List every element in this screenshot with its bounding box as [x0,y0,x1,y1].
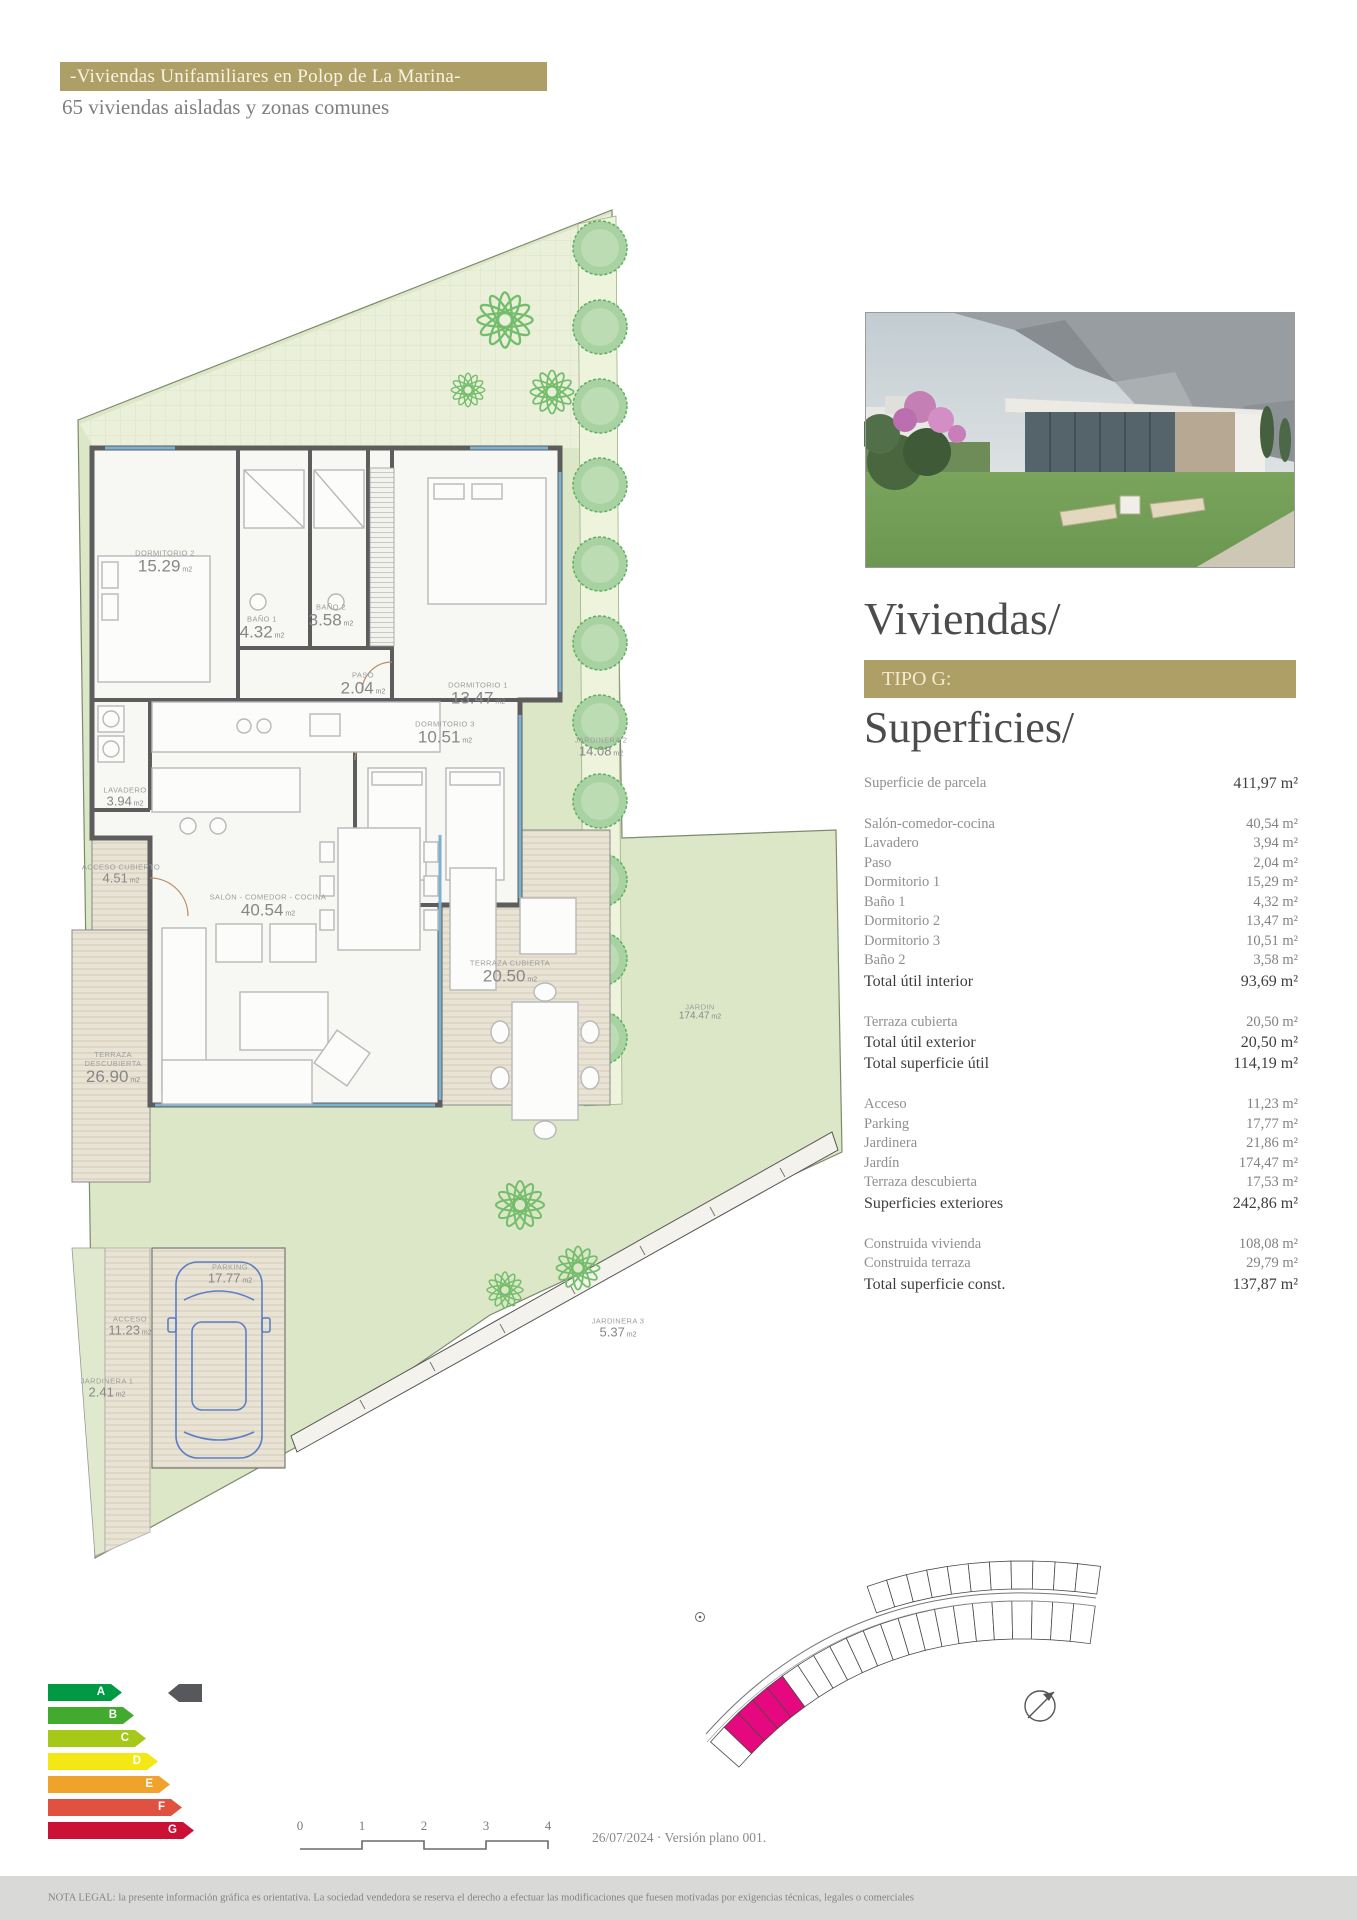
superficies-row: Total superficie útil114,19 m² [864,1053,1298,1074]
superficies-row: Dormitorio 115,29 m² [864,873,1298,893]
row-value: 17,53 m² [1246,1173,1298,1193]
row-label: Jardinera [864,1134,917,1154]
scale-tick-2: 2 [421,1818,428,1834]
energy-rating-B: B [48,1707,134,1724]
row-value: 3,94 m² [1253,834,1298,854]
type-label: TIPO G: [882,668,951,690]
row-value: 10,51 m² [1246,932,1298,952]
row-value: 114,19 m² [1233,1053,1298,1074]
superficies-row: Salón-comedor-cocina40,54 m² [864,815,1298,835]
superficies-row: Jardín174,47 m² [864,1154,1298,1174]
page-title: -Viviendas Unifamiliares en Polop de La … [70,66,461,87]
row-label: Acceso [864,1095,907,1115]
superficies-row: Baño 23,58 m² [864,951,1298,971]
legal-footer: NOTA LEGAL: la presente información gráf… [0,1876,1357,1920]
row-label: Total útil interior [864,971,973,992]
row-label: Superficies exteriores [864,1193,1003,1214]
row-label: Superficie de parcela [864,774,986,794]
energy-rating-A: A [48,1684,122,1701]
row-label: Dormitorio 1 [864,873,940,893]
superficies-row: Paso2,04 m² [864,854,1298,874]
compass-icon [1025,1691,1055,1721]
row-label: Terraza cubierta [864,1013,958,1033]
row-value: 93,69 m² [1241,971,1298,992]
row-label: Terraza descubierta [864,1173,977,1193]
row-value: 20,50 m² [1246,1013,1298,1033]
parking-area [152,1248,285,1468]
superficies-row: Superficies exteriores242,86 m² [864,1193,1298,1214]
superficies-row: Construida vivienda108,08 m² [864,1235,1298,1255]
legal-text: NOTA LEGAL: la presente información gráf… [48,1893,914,1904]
scale-bar [300,1841,548,1849]
energy-rating-C: C [48,1730,146,1747]
site-plot [947,1564,971,1594]
row-value: 242,86 m² [1233,1193,1298,1214]
row-label: Total superficie const. [864,1274,1006,1295]
page-subtitle: 65 viviendas aisladas y zonas comunes [62,95,389,120]
brochure-page: -Viviendas Unifamiliares en Polop de La … [0,0,1357,1920]
superficies-row: Acceso11,23 m² [864,1095,1298,1115]
row-value: 13,47 m² [1246,912,1298,932]
superficies-row: Total útil interior93,69 m² [864,971,1298,992]
site-plot [1075,1564,1101,1594]
version-date: 26/07/2024 · Versión plano 001. [592,1830,766,1846]
row-label: Construida vivienda [864,1235,981,1255]
row-value: 15,29 m² [1246,873,1298,893]
villa-photo-render [864,312,1296,568]
row-label: Total útil exterior [864,1032,976,1053]
superficies-row: Jardinera21,86 m² [864,1134,1298,1154]
energy-rating-D: D [48,1753,158,1770]
open-terrace-area [72,930,150,1182]
row-value: 20,50 m² [1241,1032,1298,1053]
floor-plan [72,210,842,1558]
row-value: 4,32 m² [1253,893,1298,913]
scale-tick-0: 0 [297,1818,304,1834]
superficies-row: Total superficie const.137,87 m² [864,1274,1298,1295]
site-plot [989,1561,1011,1590]
row-value: 411,97 m² [1233,774,1298,794]
title-banner: -Viviendas Unifamiliares en Polop de La … [60,62,547,91]
subsection-title: Superficies/ [864,702,1074,753]
site-plot [1032,1561,1055,1590]
row-value: 29,79 m² [1246,1254,1298,1274]
wardrobe-strip [370,468,394,646]
superficies-row: Terraza descubierta17,53 m² [864,1173,1298,1193]
row-label: Lavadero [864,834,919,854]
site-plot [1070,1603,1095,1643]
superficies-table: Superficie de parcela411,97 m²Salón-come… [864,774,1298,1316]
energy-selected-arrow-icon [168,1684,202,1702]
superficies-row: Dormitorio 213,47 m² [864,912,1298,932]
type-banner: TIPO G: [864,660,1296,698]
site-plot [1053,1562,1077,1592]
site-plot [1051,1602,1074,1641]
covered-access-area [92,838,150,930]
superficies-row: Total útil exterior20,50 m² [864,1032,1298,1053]
row-label: Salón-comedor-cocina [864,815,995,835]
row-label: Dormitorio 2 [864,912,940,932]
site-plot [1011,1561,1033,1589]
superficies-group: Construida vivienda108,08 m²Construida t… [864,1235,1298,1295]
superficies-row: Terraza cubierta20,50 m² [864,1013,1298,1033]
access-strip [105,1248,150,1552]
superficies-row: Baño 14,32 m² [864,893,1298,913]
row-label: Paso [864,854,891,874]
marker-icon [696,1613,705,1622]
superficies-row: Dormitorio 310,51 m² [864,932,1298,952]
row-value: 108,08 m² [1239,1235,1298,1255]
superficies-row: Lavadero3,94 m² [864,834,1298,854]
row-label: Parking [864,1115,909,1135]
superficies-group: Salón-comedor-cocina40,54 m²Lavadero3,94… [864,815,1298,992]
site-plan [696,1561,1101,1767]
row-value: 137,87 m² [1233,1274,1298,1295]
site-plot [968,1562,991,1592]
section-title: Viviendas/ [864,592,1061,645]
scale-tick-4: 4 [545,1818,552,1834]
superficies-group: Terraza cubierta20,50 m²Total útil exter… [864,1013,1298,1075]
row-label: Construida terraza [864,1254,971,1274]
scale-tick-3: 3 [483,1818,490,1834]
superficies-group: Superficie de parcela411,97 m² [864,774,1298,794]
row-label: Baño 1 [864,893,905,913]
row-value: 3,58 m² [1253,951,1298,971]
superficies-group: Acceso11,23 m²Parking17,77 m²Jardinera21… [864,1095,1298,1214]
row-value: 11,23 m² [1247,1095,1298,1115]
planter-1-strip [72,1248,105,1556]
superficies-row: Superficie de parcela411,97 m² [864,774,1298,794]
site-plot [1031,1601,1052,1640]
scale-tick-1: 1 [359,1818,366,1834]
row-value: 174,47 m² [1239,1154,1298,1174]
row-value: 17,77 m² [1246,1115,1298,1135]
energy-rating-F: F [48,1799,182,1816]
site-plot [1012,1601,1032,1639]
site-plot [972,1602,994,1641]
villa-photo [864,312,1296,568]
row-label: Jardín [864,1154,899,1174]
row-label: Dormitorio 3 [864,932,940,952]
superficies-row: Parking17,77 m² [864,1115,1298,1135]
site-plot [992,1601,1013,1640]
row-label: Total superficie útil [864,1053,989,1074]
superficies-row: Construida terraza29,79 m² [864,1254,1298,1274]
energy-rating-E: E [48,1776,170,1793]
row-value: 21,86 m² [1246,1134,1298,1154]
row-value: 40,54 m² [1246,815,1298,835]
row-label: Baño 2 [864,951,905,971]
row-value: 2,04 m² [1253,854,1298,874]
paved-area [80,214,614,448]
